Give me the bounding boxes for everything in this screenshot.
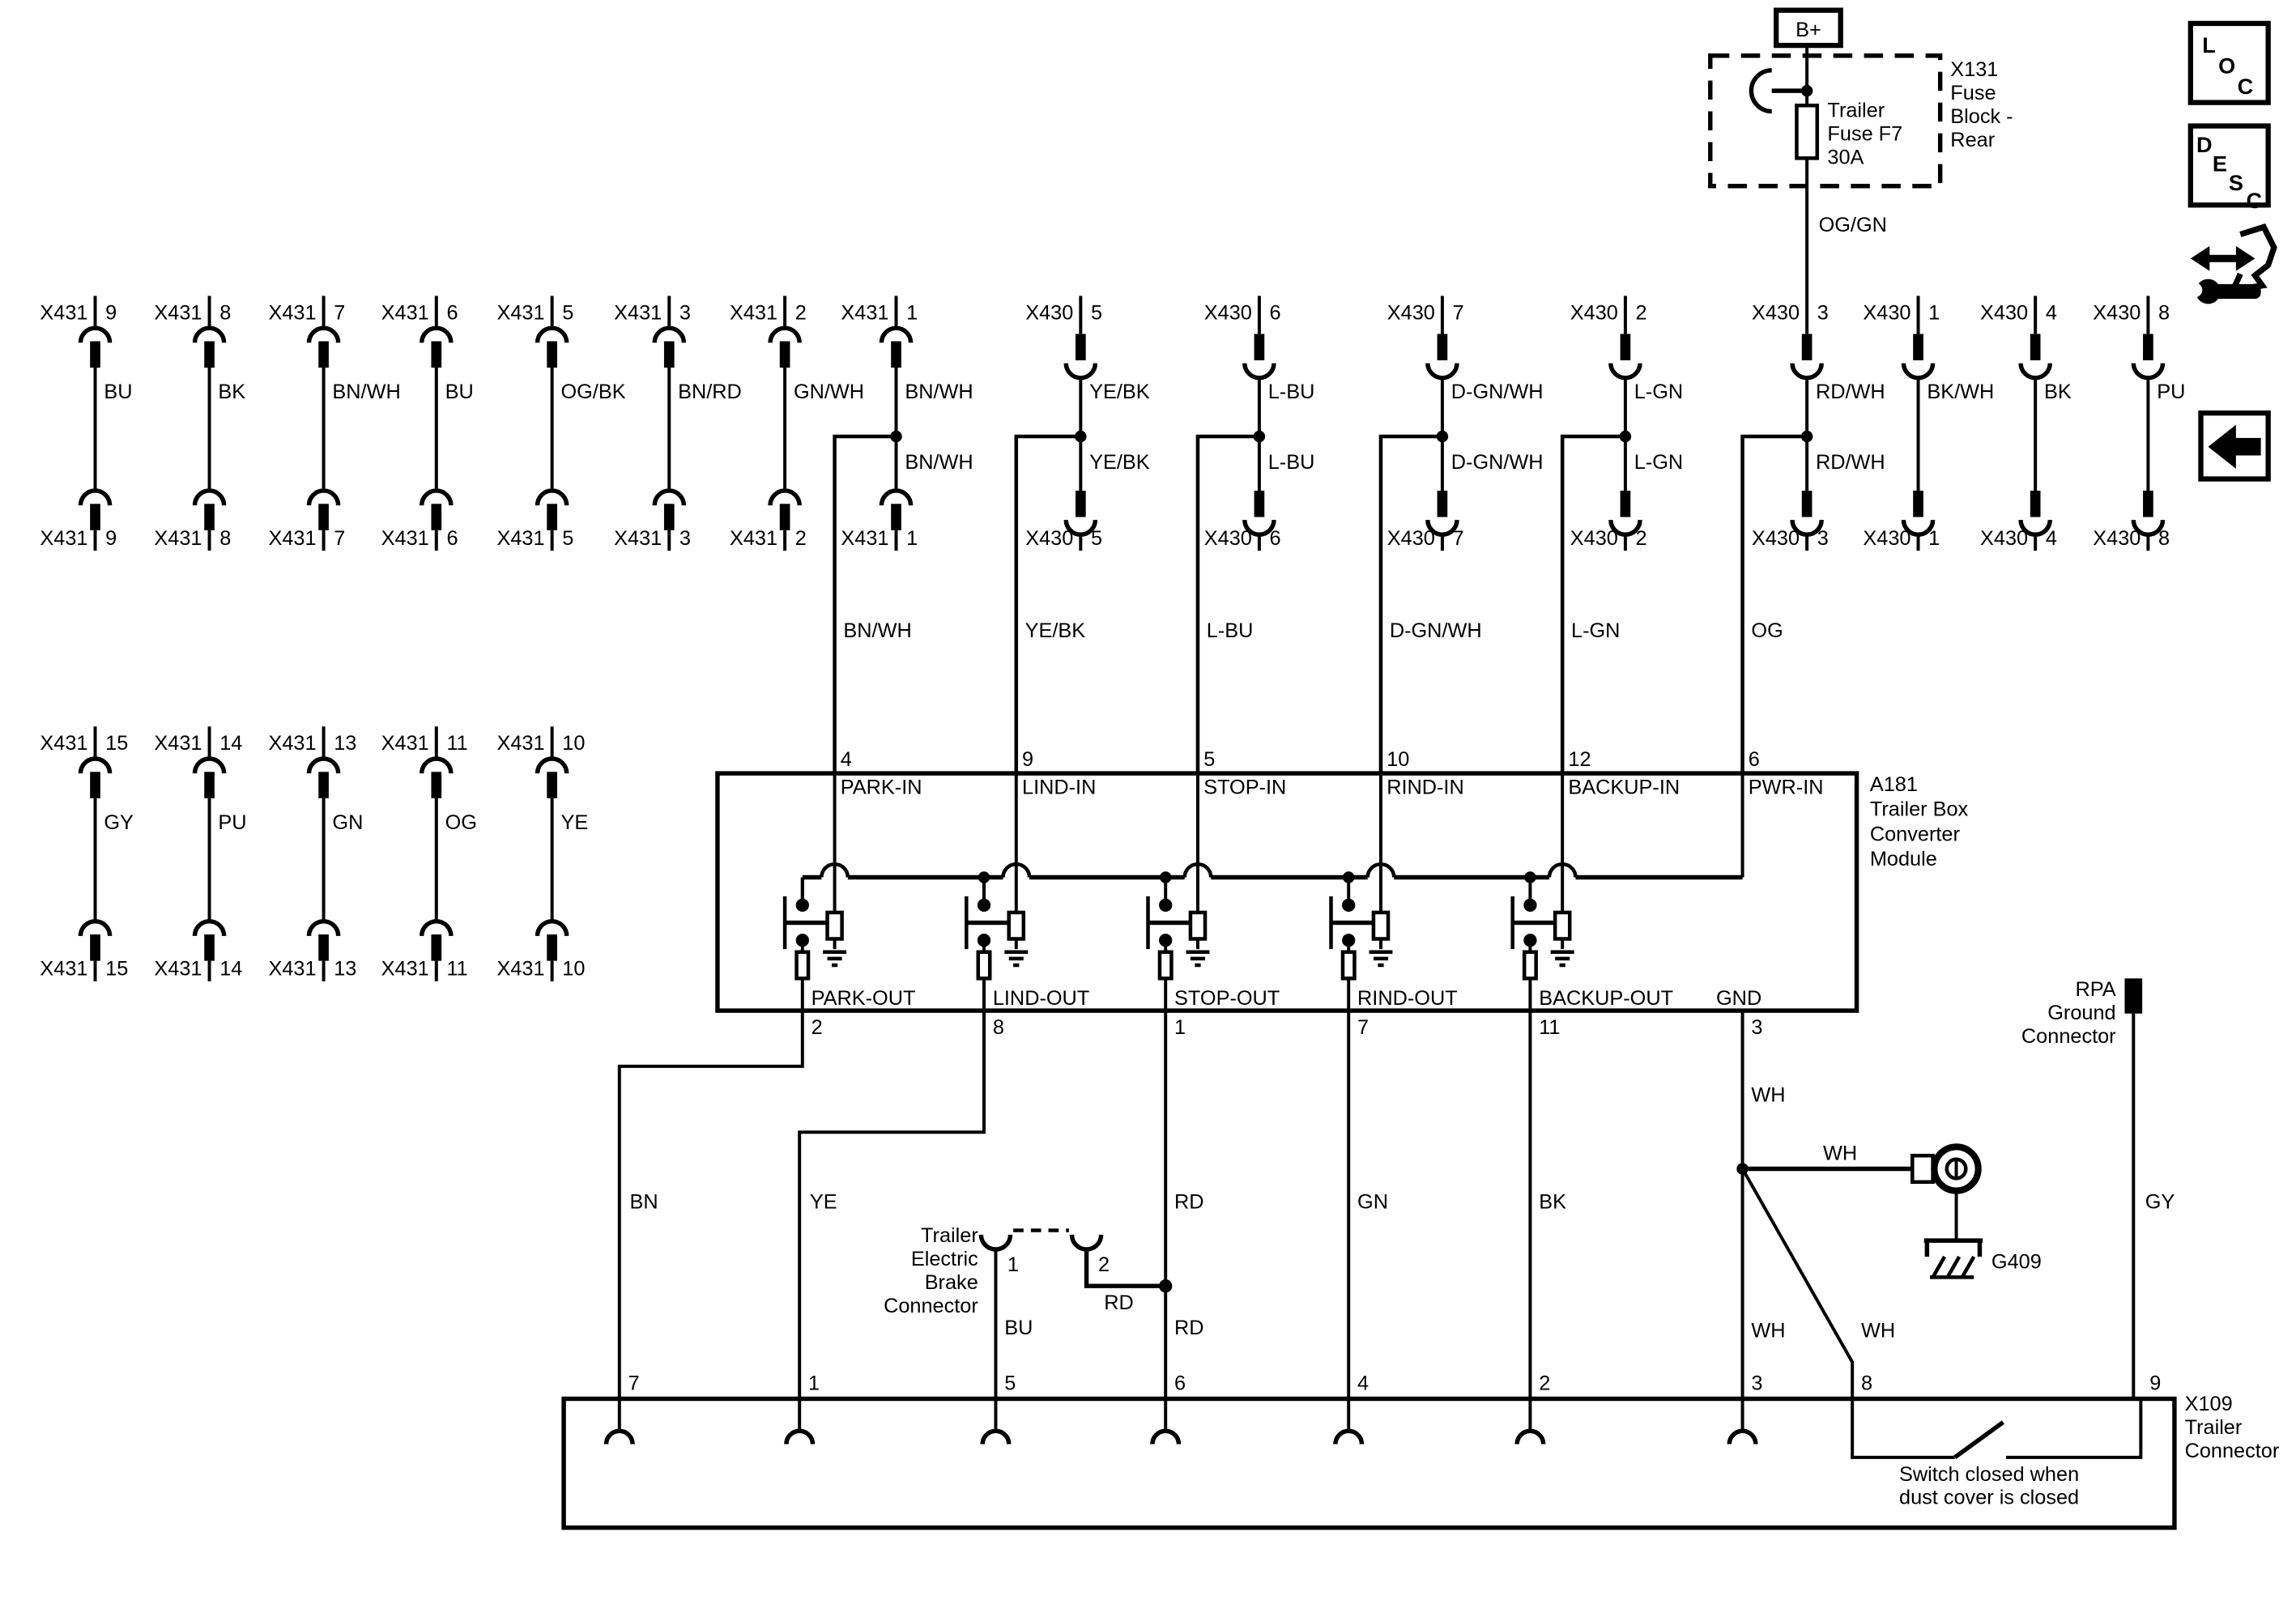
wire: [194, 921, 224, 936]
connector-pin: 11: [446, 958, 467, 981]
desc-icon[interactable]: D E S C: [2191, 126, 2268, 213]
wire: [654, 491, 684, 505]
module-pin-number: 9: [1022, 748, 1033, 771]
module-pin-label: GND: [1716, 987, 1761, 1010]
module-pin-number: 10: [1387, 748, 1409, 771]
output-wire-routes: BN YE RD GN BK WH WH WH WH RD: [620, 1011, 1912, 1398]
connector-pin-icon: [318, 341, 329, 368]
wire-color-label: PU: [2157, 381, 2185, 403]
wire: [1186, 952, 1210, 965]
connector-id: X431: [268, 732, 316, 755]
loc-icon[interactable]: L O C: [2191, 23, 2268, 103]
wire: [1792, 520, 1821, 534]
wire: [538, 759, 567, 773]
x109-name: Connector: [2185, 1440, 2280, 1462]
wire: [1066, 364, 1095, 378]
wire: [309, 328, 338, 343]
wire-color-label: GY: [2145, 1190, 2175, 1213]
wire-color-label: L-GN: [1571, 619, 1620, 642]
wire-color-label: YE/BK: [1089, 451, 1150, 474]
wire-color-label: OG/BK: [560, 381, 625, 403]
connector-pin-icon: [1438, 491, 1448, 517]
connector-pin-icon: [547, 341, 557, 368]
connector-hook-icon: [1751, 70, 1771, 112]
connector-pin-icon: [90, 772, 100, 798]
connector-id: X431: [497, 527, 545, 550]
desc-letter: D: [2196, 132, 2213, 157]
connector-id: X431: [268, 301, 316, 324]
connector-id: X431: [381, 301, 429, 324]
module-pin-number: 7: [1357, 1016, 1369, 1039]
connector-id: X431: [381, 958, 429, 981]
wire-color-label: BN/WH: [843, 619, 911, 642]
connector-pin-icon: [1076, 334, 1086, 360]
generated-schematic-elements: X4319X4319BUX4318X4318BKX4317X4317BN/WHX…: [40, 296, 2185, 1444]
connector-cup-icon: [981, 1235, 1010, 1249]
connector-pin: 3: [1817, 301, 1829, 324]
wire-color-label: L-GN: [1634, 451, 1683, 474]
wrench-notch: [2187, 283, 2202, 297]
connector-id: X431: [268, 958, 316, 981]
transistor-body-icon: [1374, 913, 1388, 939]
wire: [80, 491, 109, 505]
desc-letter: E: [2213, 151, 2227, 177]
fuse-block-name: Fuse: [1950, 82, 1996, 104]
ground-symbol-icon: [1924, 1240, 1983, 1257]
wire: [309, 491, 338, 505]
wire: [1370, 952, 1393, 965]
wire: [1743, 436, 1808, 773]
wire: [1004, 952, 1028, 965]
wire-color-label: YE: [810, 1190, 837, 1213]
connector-id: X431: [497, 958, 545, 981]
junction-dot: [1342, 899, 1355, 912]
fuse-element-icon: [1796, 105, 1817, 158]
connector-id: X430: [1980, 527, 2028, 550]
connector-pin-icon: [431, 341, 441, 368]
connector-pin: 14: [219, 732, 242, 755]
desc-letter: S: [2229, 170, 2243, 195]
wire: [786, 1431, 813, 1444]
module-pin-label: RIND-IN: [1387, 776, 1464, 798]
wire: [422, 491, 451, 505]
wire-color-label: D-GN/WH: [1390, 619, 1482, 642]
connector-id: X431: [40, 301, 87, 324]
connector-id: X431: [40, 527, 87, 550]
connector-id: X431: [841, 527, 888, 550]
connector-pin-icon: [318, 772, 329, 798]
wire: [1903, 520, 1932, 534]
connector-pin-icon: [1254, 334, 1265, 360]
junction-dot: [1159, 899, 1172, 912]
connector-pin-icon: [1802, 491, 1813, 517]
connector-id: X430: [1863, 301, 1910, 324]
wire: [1428, 364, 1457, 378]
connector-pin: 10: [562, 958, 585, 981]
module-pin-label: PWR-IN: [1749, 776, 1824, 798]
wire: [1152, 1431, 1179, 1444]
connector-id: X431: [497, 732, 545, 755]
connector-pin-icon: [90, 341, 100, 368]
connector-pin: 13: [334, 958, 356, 981]
wire: [881, 328, 910, 343]
module-id: A181: [1870, 773, 1918, 796]
repair-instructions-icon[interactable]: [2187, 227, 2274, 304]
connector-pin: 1: [906, 301, 918, 324]
wire: [80, 921, 109, 936]
connector-pin-icon: [431, 772, 441, 798]
module-pin-label: BACKUP-OUT: [1539, 987, 1673, 1010]
wire-color-label: BN/WH: [905, 451, 973, 474]
wire-color-label: BN: [629, 1190, 658, 1213]
connector-pin: 6: [1270, 301, 1281, 324]
junction-dot: [1801, 85, 1813, 96]
connector-pin-icon: [204, 934, 215, 961]
connector-pin: 1: [906, 527, 918, 550]
wire: [80, 759, 109, 773]
connector-pin: 2: [795, 527, 807, 550]
connector-pin-icon: [547, 934, 557, 961]
connector-pin-icon: [1913, 491, 1923, 517]
connector-id: X430: [2093, 527, 2141, 550]
connector-id: X430: [1752, 527, 1800, 550]
module-name: Module: [1870, 848, 1937, 870]
module-pin-number: 6: [1749, 748, 1760, 771]
connector-pin-icon: [431, 504, 441, 530]
connector-id: X431: [614, 301, 662, 324]
wire: [1198, 436, 1259, 773]
wire: [835, 436, 897, 773]
connector-pin-icon: [891, 504, 901, 530]
module-pin-label: PARK-OUT: [811, 987, 916, 1010]
wire: [1381, 436, 1442, 773]
wire: [1729, 1431, 1756, 1444]
wire: [1792, 364, 1821, 378]
wire-color-label: D-GN/WH: [1451, 381, 1544, 403]
wire-color-label: WH: [1751, 1083, 1785, 1106]
fuse-block-dashed-box: [1710, 56, 1940, 186]
switch-lead-right: [2006, 1398, 2141, 1457]
connector-pin: 6: [446, 527, 458, 550]
connector-pin: 8: [219, 301, 231, 324]
wire-gnd-diagonal: [1743, 1168, 1853, 1398]
arrow-head-right: [2236, 246, 2256, 271]
wire-color-label: GN: [1357, 1190, 1388, 1213]
wire-color-label: BN/WH: [332, 381, 400, 403]
switch-note: dust cover is closed: [1899, 1487, 2079, 1509]
connector-id: X431: [381, 527, 429, 550]
wire: [2021, 364, 2050, 378]
g409-ground: G409: [1912, 1147, 2042, 1277]
rpa-ground-connector: RPA Ground Connector GY: [2021, 978, 2175, 1398]
module-name: Trailer Box: [1870, 798, 1969, 821]
connector-id: X431: [497, 301, 545, 324]
module-pin-number: 2: [811, 1016, 823, 1039]
brake-connector-name: Trailer: [921, 1224, 978, 1247]
module-pin-label: STOP-IN: [1203, 776, 1286, 798]
rpa-name: Connector: [2021, 1025, 2116, 1048]
module-pin-number: 12: [1568, 748, 1591, 771]
fuse-block-name: Block -: [1950, 105, 2013, 128]
desc-letter: C: [2247, 188, 2263, 213]
connector-pin: 15: [105, 732, 128, 755]
connector-pin-icon: [780, 341, 790, 368]
back-arrow-icon[interactable]: [2200, 413, 2268, 479]
trailer-electric-brake-connector: Trailer Electric Brake Connector 1 2 BU …: [884, 1224, 1165, 1399]
connector-pin-icon: [1802, 334, 1813, 360]
connector-pin: 2: [1636, 301, 1647, 324]
connector-pin-icon: [204, 504, 215, 530]
resistor-icon: [978, 952, 990, 979]
connector-pin: 4: [1357, 1372, 1369, 1395]
connector-id: X430: [1570, 301, 1618, 324]
connector-id: X430: [1204, 301, 1252, 324]
wire-color-label: GN/WH: [794, 381, 864, 403]
module-name: Converter: [1870, 823, 1960, 845]
connector-pin: 1: [1928, 301, 1940, 324]
connector-pin-icon: [664, 341, 675, 368]
loc-letter: O: [2218, 53, 2235, 78]
wire: [538, 921, 567, 936]
transistor-body-icon: [1555, 913, 1570, 939]
fuse-name: Fuse F7: [1827, 123, 1902, 146]
connector-pin: 11: [446, 732, 467, 755]
wire: [823, 952, 846, 965]
wire: [1245, 520, 1274, 534]
connector-pin: 5: [1004, 1372, 1016, 1395]
wire: [1335, 1431, 1362, 1444]
wire-color-label: BK: [218, 381, 245, 403]
wire-color-label: GY: [104, 811, 134, 834]
brake-connector-name: Electric: [911, 1248, 978, 1270]
wire-color-label: D-GN/WH: [1451, 451, 1544, 474]
connector-pin-icon: [2030, 334, 2041, 360]
fuse-block-name: Rear: [1950, 129, 1995, 151]
connector-pin-icon: [431, 934, 441, 961]
connector-pin-icon: [664, 504, 675, 530]
connector-pin-icon: [1621, 334, 1631, 360]
connector-id: X431: [154, 527, 202, 550]
wire: [194, 759, 224, 773]
wire-color-label: WH: [1751, 1319, 1785, 1342]
connector-pin-icon: [2143, 491, 2153, 517]
wire: [194, 491, 224, 505]
connector-pin: 5: [1091, 301, 1102, 324]
connector-cup-icon: [1071, 1235, 1101, 1249]
wire: [982, 1431, 1009, 1444]
module-pin-number: 8: [993, 1016, 1004, 1039]
wire-color-label: BU: [104, 381, 132, 403]
module-box: [718, 773, 1857, 1011]
connector-id: X431: [268, 527, 316, 550]
wire: [1066, 520, 1095, 534]
wire: [309, 759, 338, 773]
wire-color-label: PU: [218, 811, 246, 834]
wiring-diagram: B+ Trailer Fuse F7 30A X131 Fuse Block -…: [0, 0, 2296, 1617]
x109-trailer-connector: Switch closed when dust cover is closed …: [564, 1393, 2279, 1528]
connector-pin-icon: [2143, 334, 2153, 360]
junction-dot: [796, 899, 809, 912]
x109-name: Trailer: [2185, 1416, 2243, 1439]
module-pin-number: 4: [841, 748, 852, 771]
connector-pin: 8: [2158, 301, 2170, 324]
connector-pin: 10: [562, 732, 585, 755]
connector-id: X431: [614, 527, 662, 550]
wire-color-label: BN/WH: [905, 381, 973, 403]
ring-terminal-barrel: [1912, 1155, 1932, 1182]
connector-pin-icon: [90, 934, 100, 961]
connector-pin: 4: [2046, 301, 2057, 324]
wire-color-label: BU: [1004, 1317, 1033, 1339]
fuse-block-circuit: B+ Trailer Fuse F7 30A X131 Fuse Block -…: [1710, 11, 2013, 296]
connector-id: X430: [1863, 527, 1910, 550]
connector-id: X430: [1387, 527, 1435, 550]
wire-color-label: YE/BK: [1089, 381, 1150, 403]
connector-id: X431: [40, 732, 87, 755]
transistor-body-icon: [828, 913, 842, 939]
wire-color-label: BU: [445, 381, 474, 403]
connector-pin: 2: [1539, 1372, 1550, 1395]
wire-color-label: BK: [1539, 1190, 1566, 1213]
connector-id: X431: [730, 301, 777, 324]
wrench-handle-icon: [2211, 284, 2260, 299]
connector-pin-icon: [1913, 334, 1923, 360]
switch-blade-icon: [1955, 1422, 2004, 1457]
connector-pin: 3: [679, 301, 691, 324]
wire-color-label: BN/RD: [678, 381, 742, 403]
wire: [1428, 520, 1457, 534]
connector-pin: 13: [334, 732, 356, 755]
wire-color-label: WH: [1861, 1319, 1895, 1342]
connector-id: X430: [1204, 527, 1252, 550]
rpa-name: RPA: [2075, 978, 2115, 1001]
connector-id: X430: [1025, 527, 1073, 550]
module-pin-label: LIND-OUT: [993, 987, 1089, 1010]
wire: [2133, 520, 2162, 534]
connector-id: X430: [1025, 301, 1073, 324]
brake-connector-name: Brake: [925, 1271, 978, 1294]
connector-pin-icon: [318, 504, 329, 530]
battery-label: B+: [1795, 19, 1821, 41]
wire-color-label: L-BU: [1268, 451, 1315, 474]
module-pin-number: 5: [1203, 748, 1215, 771]
module-pin-label: PARK-IN: [841, 776, 922, 798]
connector-pin: 9: [2149, 1372, 2161, 1395]
switch-note: Switch closed when: [1899, 1463, 2079, 1486]
connector-pin-icon: [1076, 491, 1086, 517]
transistor-body-icon: [1009, 913, 1024, 939]
module-pin-label: RIND-OUT: [1357, 987, 1458, 1010]
wire: [1245, 364, 1274, 378]
loc-letter: L: [2202, 32, 2216, 57]
brake-connector-name: Connector: [884, 1295, 978, 1317]
connector-pin: 3: [679, 527, 691, 550]
connector-id: X430: [1980, 301, 2028, 324]
junction-dot: [1523, 899, 1536, 912]
wire: [1611, 364, 1640, 378]
connector-pin: 5: [562, 527, 573, 550]
wire: [607, 1431, 633, 1444]
connector-pin-icon: [1438, 334, 1448, 360]
wire-color-label: OG: [445, 811, 477, 834]
junction-dot: [978, 899, 990, 912]
wire-color-label: L-BU: [1207, 619, 1254, 642]
connector-pin-icon: [547, 504, 557, 530]
wire: [1611, 520, 1640, 534]
wire-color-label: L-GN: [1634, 381, 1683, 403]
fuse-name: 30A: [1827, 147, 1864, 169]
connector-pin: 5: [562, 301, 573, 324]
ground-id: G409: [1991, 1250, 2042, 1273]
wire: [2021, 520, 2050, 534]
connector-pin: 9: [105, 301, 117, 324]
connector-pin: 7: [628, 1372, 640, 1395]
x109-id: X109: [2185, 1393, 2233, 1415]
wire-color-label: BK/WH: [1927, 381, 1994, 403]
connector-pin-icon: [2030, 491, 2041, 517]
connector-pin: 2: [1098, 1253, 1110, 1276]
connector-id: X431: [154, 732, 202, 755]
wire: [422, 921, 451, 936]
connector-id: X431: [40, 958, 87, 981]
wire-color-label: RD/WH: [1816, 451, 1885, 474]
resistor-icon: [1343, 952, 1354, 979]
wire: [770, 491, 799, 505]
module-pin-label: BACKUP-IN: [1568, 776, 1680, 798]
wire-color-label: RD: [1104, 1291, 1134, 1314]
wire: [881, 491, 910, 505]
connector-pin: 2: [795, 301, 807, 324]
connector-id: X430: [1387, 301, 1435, 324]
wire: [422, 328, 451, 343]
wire-color-label: YE/BK: [1025, 619, 1086, 642]
wire: [422, 759, 451, 773]
connector-pin: 6: [446, 301, 458, 324]
connector-id: X431: [154, 958, 202, 981]
wire: [538, 328, 567, 343]
module-pin-label: LIND-IN: [1022, 776, 1096, 798]
connector-pin: 8: [1861, 1372, 1872, 1395]
connector-id: X430: [1570, 527, 1618, 550]
arrow-head-left: [2191, 246, 2210, 271]
connector-id: X430: [1752, 301, 1800, 324]
connector-pin-icon: [204, 341, 215, 368]
connector-pin-icon: [891, 341, 901, 368]
wire-color-label: GN: [332, 811, 363, 834]
fuse-block-id: X131: [1950, 58, 1998, 81]
connector-pin-icon: [1621, 491, 1631, 517]
resistor-icon: [797, 952, 808, 979]
connector-pin: 1: [808, 1372, 820, 1395]
module-pin-number: 1: [1174, 1016, 1186, 1039]
module-pin-number: 3: [1751, 1016, 1762, 1039]
wire: [1517, 1431, 1544, 1444]
fuse-name: Trailer: [1827, 100, 1885, 122]
connector-pin: 9: [105, 527, 117, 550]
connector-pin: 7: [1453, 301, 1464, 324]
ground-hatch-icon: [1930, 1257, 1974, 1277]
connector-id: X431: [381, 732, 429, 755]
wire-color-label: BK: [2044, 381, 2072, 403]
wire: [538, 491, 567, 505]
connector-pin: 6: [1174, 1372, 1186, 1395]
wire: [1562, 436, 1625, 773]
wire-color-label: RD: [1174, 1190, 1204, 1213]
wire: [1551, 952, 1574, 965]
connector-pin: 7: [334, 527, 345, 550]
wire-color-label: RD/WH: [1816, 381, 1885, 403]
connector-id: X430: [2093, 301, 2141, 324]
